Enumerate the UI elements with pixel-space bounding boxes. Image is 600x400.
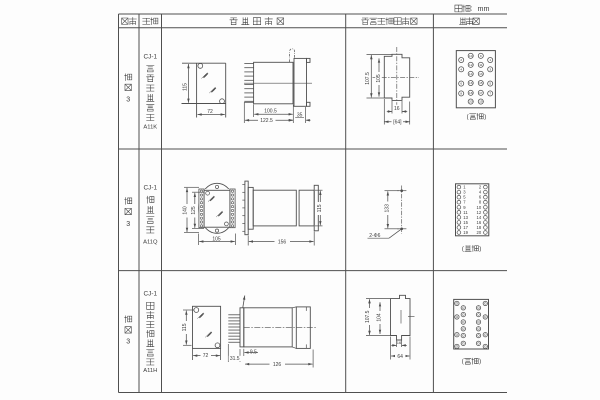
svg-text:): ) [479, 359, 481, 365]
svg-text:CJ-1: CJ-1 [144, 184, 158, 191]
svg-text:107.5: 107.5 [365, 310, 371, 323]
svg-text:20: 20 [477, 230, 482, 235]
svg-text:14: 14 [469, 72, 473, 76]
svg-text:115: 115 [182, 323, 188, 331]
svg-text:): ) [484, 114, 486, 120]
svg-text:mm: mm [478, 4, 490, 13]
svg-text:(: ( [462, 246, 464, 252]
svg-text:19: 19 [479, 100, 483, 104]
svg-text:3: 3 [126, 221, 130, 228]
svg-text:104: 104 [376, 313, 382, 322]
svg-text:105: 105 [376, 74, 382, 83]
svg-text:140: 140 [183, 206, 189, 215]
svg-text:(: ( [462, 359, 464, 365]
svg-text:16: 16 [394, 106, 400, 112]
svg-text:8: 8 [460, 92, 462, 96]
svg-text:115: 115 [317, 204, 323, 212]
svg-text:3: 3 [126, 96, 130, 103]
svg-text:15: 15 [479, 81, 483, 85]
svg-text:CJ-1: CJ-1 [144, 54, 158, 61]
svg-text:31.5: 31.5 [230, 356, 240, 362]
svg-text:105: 105 [212, 236, 221, 242]
svg-text:2-Φ6: 2-Φ6 [369, 233, 380, 239]
svg-text:2: 2 [460, 58, 462, 62]
svg-text:115: 115 [183, 83, 189, 91]
svg-text:100.5: 100.5 [264, 108, 277, 114]
svg-text:19: 19 [463, 230, 468, 235]
svg-text:126: 126 [273, 362, 282, 368]
svg-text:122.5: 122.5 [260, 118, 273, 124]
svg-text:3: 3 [489, 67, 491, 71]
svg-text::: : [471, 6, 473, 13]
svg-text:CJ-1: CJ-1 [144, 291, 158, 298]
svg-text:133: 133 [385, 204, 391, 213]
svg-text:5: 5 [489, 82, 491, 86]
svg-text:1: 1 [489, 58, 491, 62]
svg-text:A11H: A11H [143, 368, 157, 374]
svg-text:64: 64 [397, 354, 403, 360]
svg-text:18: 18 [469, 91, 473, 95]
svg-text:72: 72 [203, 353, 209, 359]
svg-text:16: 16 [469, 81, 473, 85]
svg-text:17: 17 [479, 91, 483, 95]
svg-text:107.5: 107.5 [365, 72, 371, 85]
svg-text:3: 3 [126, 339, 130, 346]
svg-text:156: 156 [278, 239, 287, 245]
svg-text:13: 13 [479, 72, 483, 76]
svg-text:A11Q: A11Q [143, 240, 158, 246]
svg-text:10: 10 [469, 54, 473, 58]
svg-text:9: 9 [480, 54, 482, 58]
svg-text:72: 72 [207, 109, 213, 115]
svg-text:20: 20 [469, 100, 473, 104]
svg-text:): ) [479, 246, 481, 252]
svg-text:(: ( [467, 114, 469, 120]
svg-text:12: 12 [469, 63, 473, 67]
svg-text:125: 125 [191, 206, 197, 215]
svg-text:16: 16 [397, 340, 402, 345]
svg-text:4: 4 [460, 67, 462, 71]
svg-text:7: 7 [489, 92, 491, 96]
svg-text:11: 11 [479, 63, 482, 67]
svg-text:6: 6 [460, 82, 462, 86]
svg-text:[64]: [64] [393, 120, 402, 126]
svg-text:A11K: A11K [143, 124, 157, 130]
svg-text:9.5: 9.5 [250, 349, 257, 355]
